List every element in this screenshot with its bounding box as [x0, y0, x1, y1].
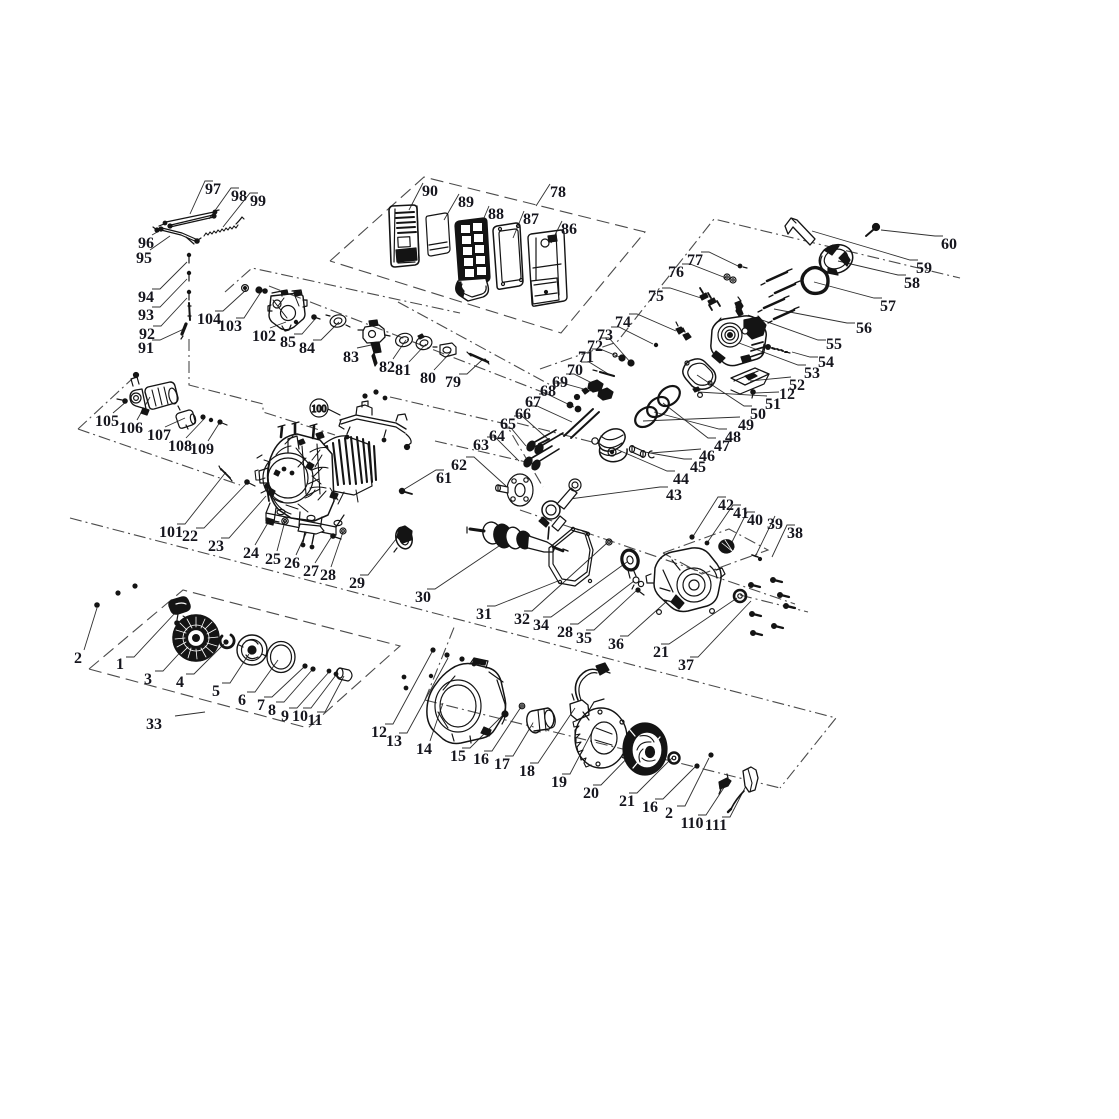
svg-text:96: 96	[138, 235, 154, 252]
svg-text:79: 79	[445, 374, 461, 391]
svg-text:87: 87	[523, 211, 539, 228]
svg-text:105: 105	[95, 413, 119, 430]
svg-text:62: 62	[451, 457, 467, 474]
svg-text:73: 73	[597, 327, 613, 344]
svg-text:21: 21	[653, 644, 669, 661]
svg-text:44: 44	[673, 471, 689, 488]
svg-text:61: 61	[436, 470, 452, 487]
svg-text:1: 1	[116, 656, 124, 673]
svg-text:99: 99	[250, 193, 266, 210]
svg-text:98: 98	[231, 188, 247, 205]
svg-text:8: 8	[268, 702, 276, 719]
svg-text:15: 15	[450, 748, 466, 765]
svg-text:94: 94	[138, 289, 154, 306]
svg-text:26: 26	[284, 555, 300, 572]
svg-text:16: 16	[642, 799, 658, 816]
svg-text:10: 10	[292, 708, 308, 725]
svg-text:31: 31	[476, 606, 492, 623]
svg-text:42: 42	[718, 497, 734, 514]
svg-text:19: 19	[551, 774, 567, 791]
svg-text:36: 36	[608, 636, 624, 653]
svg-text:50: 50	[750, 406, 766, 423]
svg-text:3: 3	[144, 671, 152, 688]
svg-text:25: 25	[265, 551, 281, 568]
svg-text:20: 20	[583, 785, 599, 802]
svg-text:111: 111	[705, 817, 727, 834]
svg-text:86: 86	[561, 221, 577, 238]
svg-text:104: 104	[197, 311, 221, 328]
svg-text:74: 74	[615, 314, 631, 331]
svg-text:101: 101	[159, 524, 183, 541]
svg-text:93: 93	[138, 307, 154, 324]
svg-text:6: 6	[238, 692, 246, 709]
svg-text:92: 92	[139, 326, 155, 343]
svg-text:24: 24	[243, 545, 259, 562]
svg-text:43: 43	[666, 487, 682, 504]
svg-text:11: 11	[307, 712, 322, 729]
svg-text:90: 90	[422, 183, 438, 200]
svg-text:21: 21	[619, 793, 635, 810]
svg-text:55: 55	[826, 336, 842, 353]
svg-text:84: 84	[299, 340, 315, 357]
svg-text:85: 85	[280, 334, 296, 351]
svg-text:59: 59	[916, 260, 932, 277]
svg-text:12: 12	[371, 724, 387, 741]
svg-text:5: 5	[212, 683, 220, 700]
svg-text:16: 16	[473, 751, 489, 768]
svg-text:52: 52	[789, 377, 805, 394]
svg-text:110: 110	[680, 815, 703, 832]
svg-text:82: 82	[379, 359, 395, 376]
svg-text:78: 78	[550, 184, 566, 201]
svg-text:81: 81	[395, 362, 411, 379]
svg-text:54: 54	[818, 354, 834, 371]
svg-text:2: 2	[74, 650, 82, 667]
svg-text:95: 95	[136, 250, 152, 267]
svg-text:2: 2	[665, 805, 673, 822]
svg-text:56: 56	[856, 320, 872, 337]
svg-text:7: 7	[257, 697, 265, 714]
svg-text:9: 9	[281, 708, 289, 725]
svg-text:32: 32	[514, 611, 530, 628]
svg-text:34: 34	[533, 617, 549, 634]
svg-text:102: 102	[252, 328, 276, 345]
svg-text:41: 41	[733, 505, 749, 522]
svg-text:97: 97	[205, 181, 221, 198]
svg-text:39: 39	[767, 516, 783, 533]
svg-text:29: 29	[349, 575, 365, 592]
svg-text:30: 30	[415, 589, 431, 606]
svg-text:40: 40	[747, 512, 763, 529]
svg-text:23: 23	[208, 538, 224, 555]
svg-text:89: 89	[458, 194, 474, 211]
svg-text:14: 14	[416, 741, 432, 758]
svg-text:27: 27	[303, 563, 319, 580]
svg-text:88: 88	[488, 206, 504, 223]
svg-text:67: 67	[525, 394, 541, 411]
svg-text:106: 106	[119, 420, 143, 437]
svg-text:77: 77	[687, 252, 703, 269]
svg-text:100: 100	[312, 404, 327, 415]
svg-text:103: 103	[218, 318, 242, 335]
svg-text:60: 60	[941, 236, 957, 253]
svg-text:76: 76	[668, 264, 684, 281]
svg-text:63: 63	[473, 437, 489, 454]
svg-text:33: 33	[146, 716, 162, 733]
svg-text:57: 57	[880, 298, 896, 315]
svg-text:58: 58	[904, 275, 920, 292]
svg-text:18: 18	[519, 763, 535, 780]
svg-text:37: 37	[678, 657, 694, 674]
svg-text:65: 65	[500, 416, 516, 433]
svg-text:69: 69	[552, 374, 568, 391]
svg-text:51: 51	[765, 396, 781, 413]
svg-text:22: 22	[182, 528, 198, 545]
svg-text:83: 83	[343, 349, 359, 366]
svg-text:108: 108	[168, 438, 192, 455]
svg-text:4: 4	[176, 674, 184, 691]
svg-text:28: 28	[320, 567, 336, 584]
svg-text:35: 35	[576, 630, 592, 647]
svg-text:46: 46	[699, 448, 715, 465]
svg-text:80: 80	[420, 370, 436, 387]
svg-text:17: 17	[494, 756, 510, 773]
svg-text:109: 109	[190, 441, 214, 458]
svg-text:75: 75	[648, 288, 664, 305]
svg-text:13: 13	[386, 733, 402, 750]
svg-text:28: 28	[557, 624, 573, 641]
svg-text:38: 38	[787, 525, 803, 542]
